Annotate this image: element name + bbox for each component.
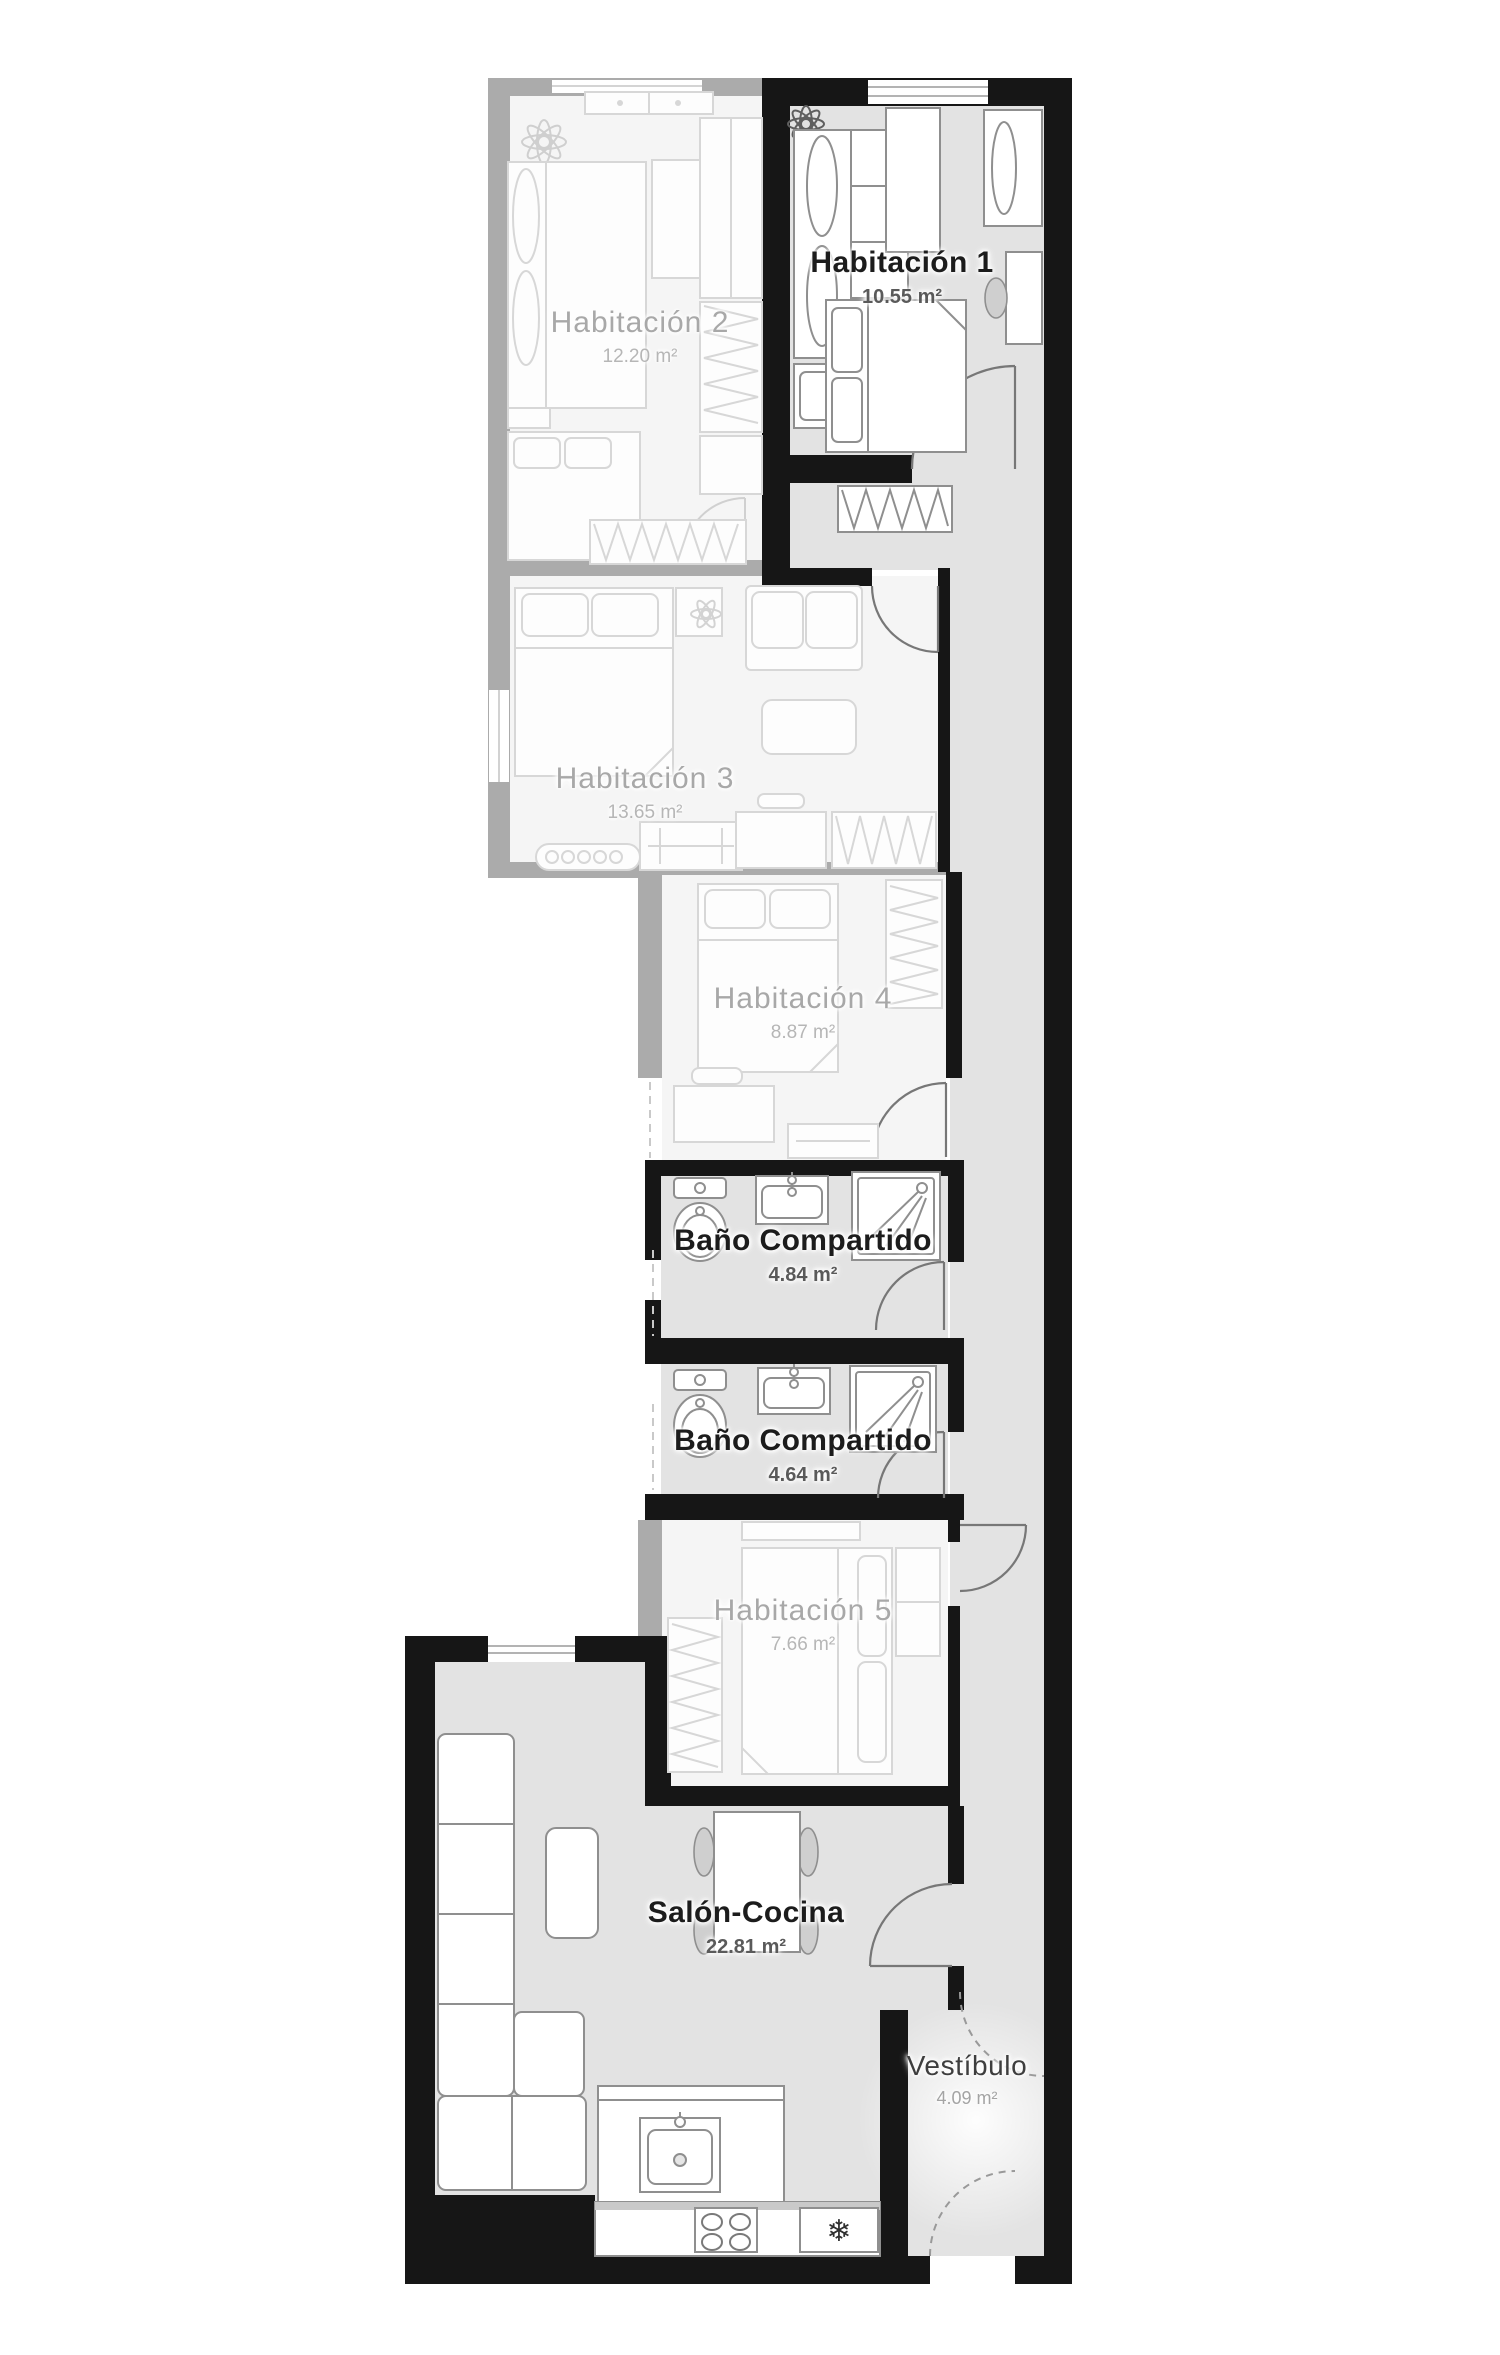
window-habitacion-1 bbox=[868, 80, 988, 104]
wardrobe-hangers-icon bbox=[886, 880, 942, 1008]
room-area: 8.87 m² bbox=[714, 1022, 893, 1044]
room-name: Habitación 2 bbox=[551, 306, 730, 340]
room-name: Habitación 4 bbox=[714, 982, 893, 1016]
snowflake-icon: ❄ bbox=[826, 2215, 851, 2248]
coffee-table-icon bbox=[546, 1828, 598, 1938]
wardrobe-hangers-icon bbox=[832, 812, 936, 868]
double-bed-icon bbox=[515, 588, 673, 776]
closet-icon bbox=[984, 110, 1042, 226]
closet-icon bbox=[896, 1548, 940, 1656]
room-area: 4.09 m² bbox=[907, 2088, 1028, 2109]
room-area: 12.20 m² bbox=[551, 346, 730, 368]
room-label-habitacion-1: Habitación 1 10.55 m² bbox=[810, 246, 993, 309]
room-name: Habitación 5 bbox=[714, 1594, 893, 1628]
room-label-habitacion-4: Habitación 4 8.87 m² bbox=[714, 982, 893, 1044]
wardrobe-hangers-icon bbox=[590, 520, 746, 564]
room-area: 7.66 m² bbox=[714, 1634, 893, 1656]
double-bed-icon bbox=[508, 162, 646, 408]
sofa-icon bbox=[746, 586, 862, 670]
room-area: 13.65 m² bbox=[556, 802, 735, 824]
room-label-habitacion-5: Habitación 5 7.66 m² bbox=[714, 1594, 893, 1656]
kitchen-sink-icon bbox=[640, 2112, 720, 2192]
radiator-icon bbox=[536, 844, 640, 870]
sink-icon bbox=[758, 1364, 830, 1414]
room-name: Vestíbulo bbox=[907, 2050, 1028, 2082]
dresser-icon bbox=[585, 92, 713, 114]
room-name: Habitación 3 bbox=[556, 762, 735, 796]
desk-icon bbox=[886, 108, 940, 252]
room-name: Salón-Cocina bbox=[648, 1896, 845, 1930]
room-name: Baño Compartido bbox=[674, 1424, 932, 1458]
room-name: Habitación 1 bbox=[810, 246, 993, 280]
room-area: 22.81 m² bbox=[648, 1936, 845, 1959]
room-area: 10.55 m² bbox=[810, 286, 993, 309]
bench-table-icon bbox=[640, 822, 742, 870]
room-label-habitacion-2: Habitación 2 12.20 m² bbox=[551, 306, 730, 368]
hall-cabinet-icon bbox=[838, 486, 952, 532]
room-area: 4.64 m² bbox=[674, 1464, 932, 1487]
coffee-table-icon bbox=[762, 700, 856, 754]
window-salon bbox=[488, 1640, 575, 1658]
fridge-icon: ❄ bbox=[800, 2208, 878, 2252]
room-label-bano-compartido-2: Baño Compartido 4.64 m² bbox=[674, 1424, 932, 1487]
sink-icon bbox=[756, 1172, 828, 1224]
double-bed-icon bbox=[826, 300, 966, 452]
room-name: Baño Compartido bbox=[674, 1224, 932, 1258]
room-area: 4.84 m² bbox=[674, 1264, 932, 1287]
room-label-vestibulo: Vestíbulo 4.09 m² bbox=[907, 2050, 1028, 2109]
bench-table-icon bbox=[788, 1124, 878, 1158]
room-label-habitacion-3: Habitación 3 13.65 m² bbox=[556, 762, 735, 824]
floor-plan-page: ❄ Habitación 1 10.55 m² Habitación 2 12.… bbox=[0, 0, 1500, 2355]
ottoman-icon bbox=[514, 2012, 584, 2096]
kitchen-counter-icon: ❄ bbox=[595, 2202, 880, 2256]
room-label-salon-cocina: Salón-Cocina 22.81 m² bbox=[648, 1896, 845, 1959]
kitchen-island-icon bbox=[598, 2086, 784, 2202]
stove-icon bbox=[695, 2208, 757, 2252]
floor-plan-drawing: ❄ bbox=[0, 0, 1500, 2355]
double-bed-icon bbox=[742, 1548, 892, 1774]
room-label-bano-compartido-1: Baño Compartido 4.84 m² bbox=[674, 1224, 932, 1287]
shelf-icon bbox=[742, 1522, 860, 1540]
